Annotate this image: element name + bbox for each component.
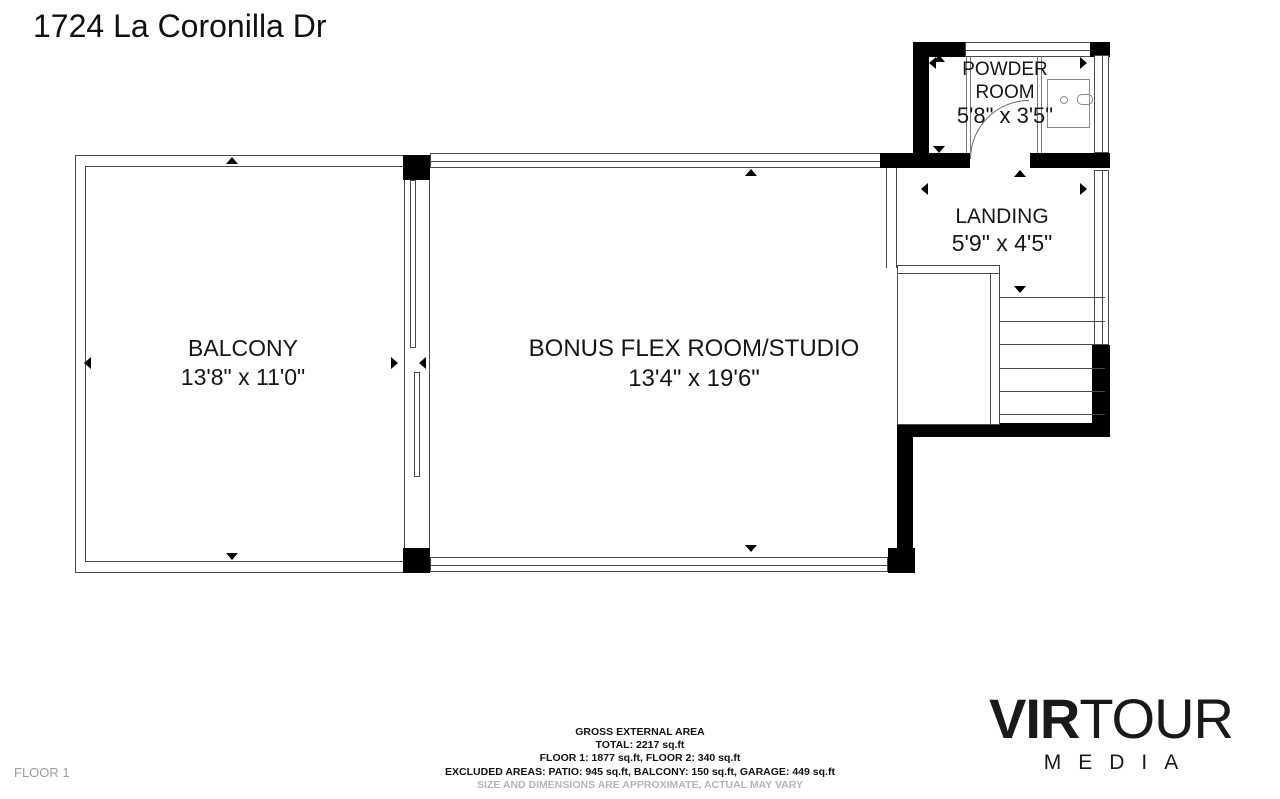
logo-brand-light: TOUR xyxy=(1079,687,1233,750)
room-dimensions: 5'9" x 4'5" xyxy=(902,230,1102,257)
bonus-room-label: BONUS FLEX ROOM/STUDIO 13'4" x 19'6" xyxy=(494,334,894,394)
logo-brand: VIRTOUR xyxy=(980,690,1242,748)
wall-corner xyxy=(403,548,430,573)
dimension-arrow xyxy=(391,357,398,369)
wall xyxy=(880,153,970,168)
dimension-arrow xyxy=(921,183,928,195)
dimension-arrow xyxy=(929,57,936,69)
dimension-arrow xyxy=(1080,183,1087,195)
room-name: POWDER xyxy=(925,58,1085,81)
window xyxy=(1094,55,1109,153)
area-summary-excluded: EXCLUDED AREAS: PATIO: 945 sq.ft, BALCON… xyxy=(340,766,940,779)
window xyxy=(965,42,1092,57)
landing-label: LANDING 5'9" x 4'5" xyxy=(902,203,1102,257)
wall xyxy=(1030,153,1110,168)
stair-void xyxy=(897,265,1000,425)
room-name: BONUS FLEX ROOM/STUDIO xyxy=(494,334,894,364)
room-dimensions: 5'8" x 3'5" xyxy=(925,104,1085,127)
dimension-arrow xyxy=(1014,286,1026,293)
room-name: BALCONY xyxy=(113,334,373,363)
area-summary-total: TOTAL: 2217 sq.ft xyxy=(340,739,940,752)
area-summary-disclaimer: SIZE AND DIMENSIONS ARE APPROXIMATE, ACT… xyxy=(340,779,940,792)
stair-tread xyxy=(1000,321,1105,322)
sliding-door-panel xyxy=(414,372,420,477)
dimension-arrow xyxy=(745,545,757,552)
stair-tread xyxy=(1000,344,1105,345)
floor-number-label: FLOOR 1 xyxy=(14,765,70,780)
address-title: 1724 La Coronilla Dr xyxy=(33,8,327,45)
wall xyxy=(897,423,1108,437)
wall xyxy=(897,437,913,573)
wall-corner xyxy=(403,155,430,180)
sliding-door-panel xyxy=(410,180,416,348)
dimension-arrow xyxy=(84,357,91,369)
dimension-arrow xyxy=(226,553,238,560)
stair-tread xyxy=(1000,297,1105,298)
window xyxy=(430,153,882,168)
dimension-arrow xyxy=(745,169,757,176)
room-name: ROOM xyxy=(925,81,1085,104)
stair-tread xyxy=(1000,414,1105,415)
area-summary: GROSS EXTERNAL AREA TOTAL: 2217 sq.ft FL… xyxy=(340,726,940,792)
dimension-arrow xyxy=(419,357,426,369)
room-dimensions: 13'8" x 11'0" xyxy=(113,363,373,392)
dimension-arrow xyxy=(933,146,945,153)
room-name: LANDING xyxy=(902,203,1102,230)
dimension-arrow xyxy=(226,157,238,164)
stair-void-rail xyxy=(990,273,991,425)
room-dimensions: 13'4" x 19'6" xyxy=(494,364,894,394)
dimension-arrow xyxy=(1080,57,1087,69)
stair-tread xyxy=(1000,391,1105,392)
area-summary-floors: FLOOR 1: 1877 sq.ft, FLOOR 2: 340 sq.ft xyxy=(340,752,940,765)
logo-brand-bold: VIR xyxy=(989,687,1079,750)
balcony-label: BALCONY 13'8" x 11'0" xyxy=(113,334,373,392)
dimension-arrow xyxy=(1014,170,1026,177)
interior-wall xyxy=(886,168,897,268)
window xyxy=(1094,170,1109,345)
virtour-media-logo: VIRTOUR MEDIA xyxy=(980,690,1242,775)
stair-void-rail xyxy=(897,273,1000,274)
window xyxy=(430,557,888,572)
powder-room-label: POWDER ROOM 5'8" x 3'5" xyxy=(925,58,1085,127)
area-summary-heading: GROSS EXTERNAL AREA xyxy=(340,726,940,739)
stair-tread xyxy=(1000,368,1105,369)
logo-subtitle: MEDIA xyxy=(980,751,1242,775)
